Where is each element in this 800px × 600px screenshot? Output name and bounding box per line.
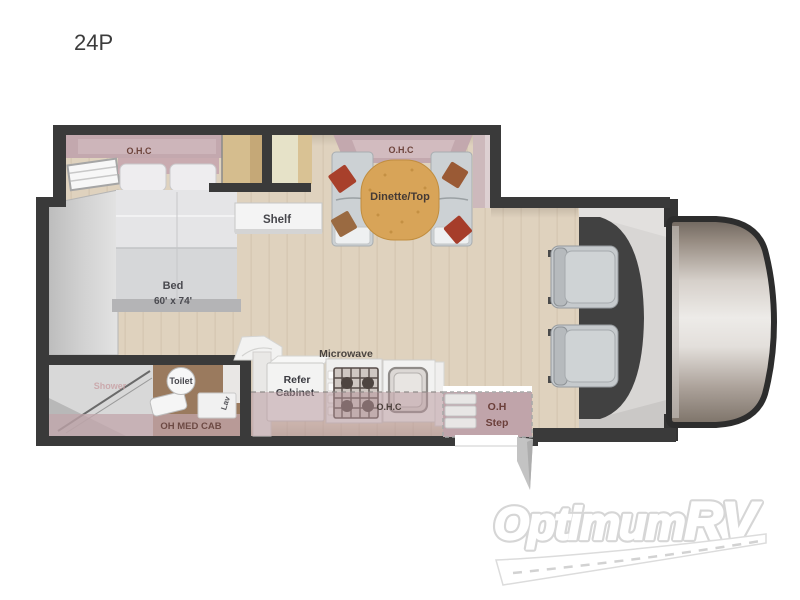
svg-text:Dinette/Top: Dinette/Top: [370, 191, 430, 203]
svg-text:O.H.C: O.H.C: [376, 402, 402, 412]
svg-text:Shelf: Shelf: [263, 214, 291, 226]
svg-text:Shower: Shower: [94, 381, 127, 391]
svg-text:O.H: O.H: [488, 401, 507, 413]
svg-text:Refer: Refer: [284, 374, 311, 386]
svg-text:24P: 24P: [74, 30, 113, 55]
svg-text:Toilet: Toilet: [169, 376, 192, 386]
svg-text:Step: Step: [486, 417, 509, 429]
svg-text:Microwave: Microwave: [319, 348, 373, 360]
svg-text:OH MED CAB: OH MED CAB: [160, 421, 221, 432]
svg-text:Bed: Bed: [163, 280, 184, 292]
svg-text:O.H.C: O.H.C: [388, 145, 414, 155]
svg-text:60' x 74': 60' x 74': [154, 296, 192, 307]
svg-text:O.H.C: O.H.C: [126, 146, 152, 156]
